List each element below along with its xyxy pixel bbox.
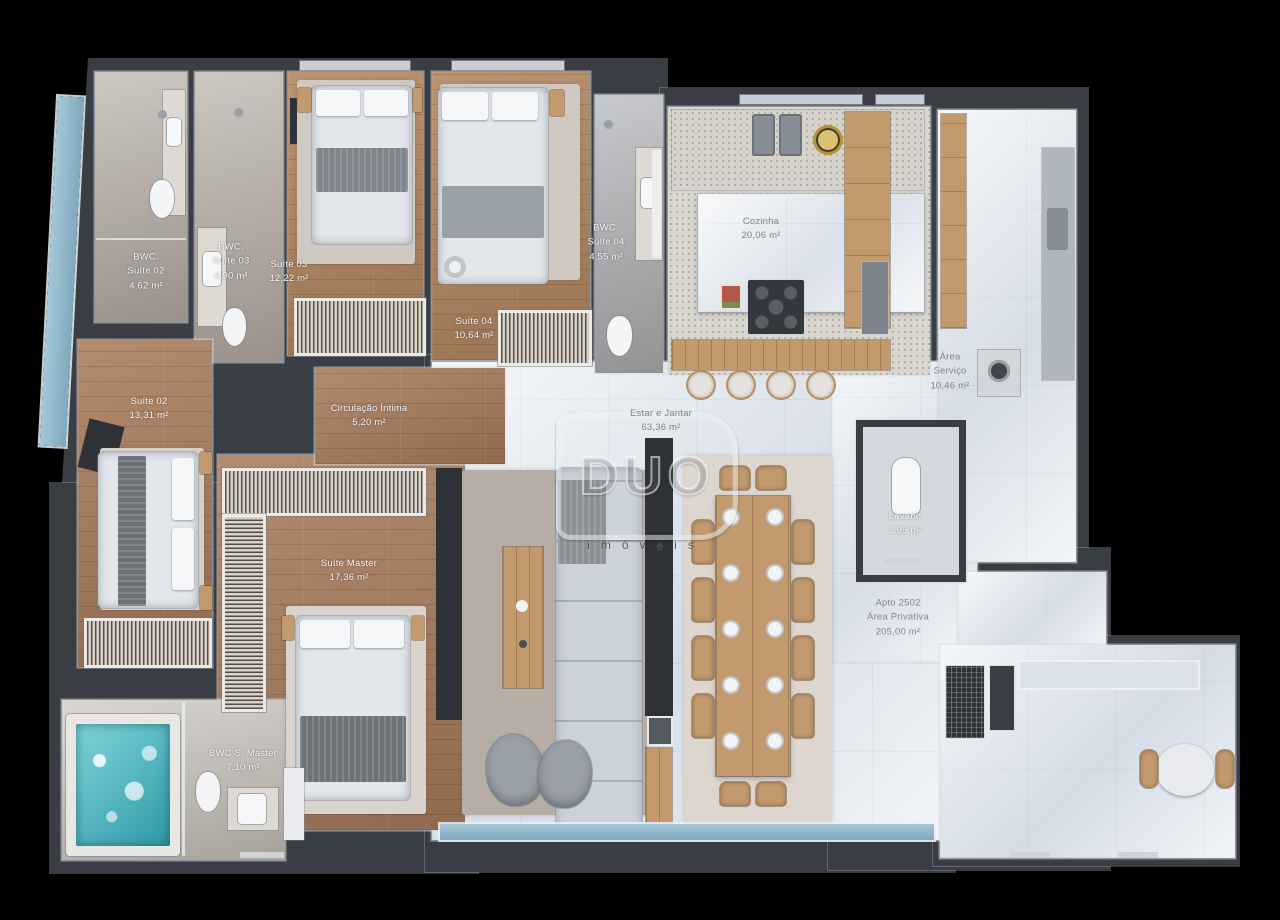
nightstand <box>550 90 564 116</box>
plate <box>766 676 784 694</box>
bed-throw <box>316 148 408 192</box>
label-apto: Apto 2502Área Privativa205,00 m² <box>867 597 929 640</box>
door-opening <box>1118 852 1158 858</box>
toilet <box>607 316 632 356</box>
label-suite02: Suíte 0213,31 m² <box>129 395 168 424</box>
stove-cooktop <box>748 280 804 334</box>
nightstand <box>282 616 294 640</box>
shower-head-icon <box>604 120 613 129</box>
bar-stool <box>728 372 754 398</box>
shower-glass-divider <box>96 238 186 240</box>
nightstand <box>200 452 212 474</box>
window-lintel <box>300 61 410 70</box>
label-area-servico: ÁreaServiço10,46 m² <box>930 351 969 394</box>
pillow <box>300 620 350 648</box>
label-bwc-suite03: BWC.Suíte 034,90 m² <box>213 241 250 284</box>
label-cozinha: Cozinha20,06 m² <box>741 215 780 244</box>
table-decor <box>519 640 527 648</box>
floor-plan: BWC.Suíte 024,62 m² BWC.Suíte 034,90 m² … <box>0 0 1280 920</box>
window-lintel <box>876 95 924 104</box>
pillow <box>172 458 194 520</box>
door-opening <box>884 558 922 564</box>
dining-chair <box>756 466 786 490</box>
label-suite03: Suíte 0312,22 m² <box>269 258 308 287</box>
sliding-glass-doors-bottom <box>440 824 934 840</box>
terrace-counter <box>1020 662 1198 688</box>
water-heater <box>1048 124 1066 142</box>
nightstand <box>413 88 422 112</box>
pedestal-sink <box>892 458 920 514</box>
sink <box>167 118 181 146</box>
pillow <box>172 528 194 590</box>
service-sink <box>1047 208 1068 250</box>
table-decor <box>516 600 528 612</box>
label-lavabo: Lavabo1,95 m² <box>888 510 922 539</box>
bar-stool <box>688 372 714 398</box>
pillow <box>354 620 404 648</box>
shower-head-icon <box>158 110 167 119</box>
bar-stool <box>808 372 834 398</box>
plate <box>766 508 784 526</box>
dining-chair <box>792 578 814 622</box>
nightstand <box>412 616 424 640</box>
toilet <box>150 180 174 218</box>
closet <box>498 310 592 366</box>
outdoor-table <box>1156 744 1214 796</box>
plate <box>722 564 740 582</box>
service-cabinet <box>941 114 966 328</box>
sideboard <box>646 748 672 836</box>
plate <box>722 732 740 750</box>
jacuzzi-water <box>76 724 170 846</box>
island-counter <box>672 340 890 370</box>
toilet <box>223 308 246 346</box>
toilet <box>196 772 220 812</box>
refrigerator <box>862 262 888 334</box>
bed-throw <box>442 186 544 238</box>
plate <box>766 732 784 750</box>
door-opening <box>240 852 284 858</box>
walk-in-closet-top <box>222 468 426 516</box>
kitchen-sink <box>752 114 775 156</box>
tv-wall-panel <box>436 468 462 720</box>
barbecue-grill <box>946 666 984 738</box>
door-opening <box>1010 852 1050 858</box>
kitchen-sink <box>779 114 802 156</box>
wall-clock-icon <box>816 128 840 152</box>
plate <box>722 676 740 694</box>
label-bwc-suite04: BWC.Suíte 044,55 m² <box>588 222 625 265</box>
nightstand <box>298 88 311 112</box>
sink <box>238 794 266 824</box>
bed-throw <box>118 456 146 606</box>
terrace-cabinet <box>990 666 1014 730</box>
label-suite04: Suíte 0410,64 m² <box>454 315 493 344</box>
dining-chair <box>692 578 714 622</box>
dining-chair <box>720 782 750 806</box>
outdoor-chair <box>1140 750 1158 788</box>
dining-chair <box>692 636 714 680</box>
bed-throw <box>300 716 406 782</box>
dining-chair <box>792 694 814 738</box>
pillow <box>442 92 488 120</box>
decor-tray <box>722 286 740 308</box>
outdoor-chair <box>1216 750 1234 788</box>
plate <box>766 620 784 638</box>
bar-stool <box>768 372 794 398</box>
plate <box>766 564 784 582</box>
window-lintel <box>452 61 564 70</box>
dining-chair <box>756 782 786 806</box>
mirror-cabinet <box>652 150 661 258</box>
dining-chair <box>792 520 814 564</box>
plate <box>722 620 740 638</box>
nightstand <box>200 586 212 610</box>
watermark-subtitle: imóveis <box>587 538 705 552</box>
label-suite-master: Suíte Master17,36 m² <box>321 557 377 586</box>
window-lintel <box>740 95 862 104</box>
watermark-logo: DUO <box>580 449 715 503</box>
pillow <box>316 90 360 116</box>
pillow <box>492 92 538 120</box>
walk-in-closet-left <box>222 514 266 712</box>
closet <box>84 618 212 668</box>
picture-frame <box>649 718 671 744</box>
label-bwc-suite02: BWC.Suíte 024,62 m² <box>128 251 165 294</box>
glass-divider <box>182 702 185 856</box>
label-estar-jantar: Estar e Jantar63,36 m² <box>630 407 692 436</box>
label-bwc-master: BWC S. Master7,10 m² <box>209 747 277 776</box>
dining-chair <box>792 636 814 680</box>
service-counter <box>1042 148 1074 380</box>
side-table <box>444 256 466 278</box>
coffee-table <box>503 547 543 688</box>
washer-door-icon <box>988 360 1010 382</box>
shower-head-icon <box>234 108 243 117</box>
dining-chair <box>692 694 714 738</box>
closet <box>294 298 426 356</box>
label-circulacao: Circulação Íntima5,20 m² <box>331 402 408 431</box>
mirror-cabinet <box>284 768 304 840</box>
pillow <box>364 90 408 116</box>
